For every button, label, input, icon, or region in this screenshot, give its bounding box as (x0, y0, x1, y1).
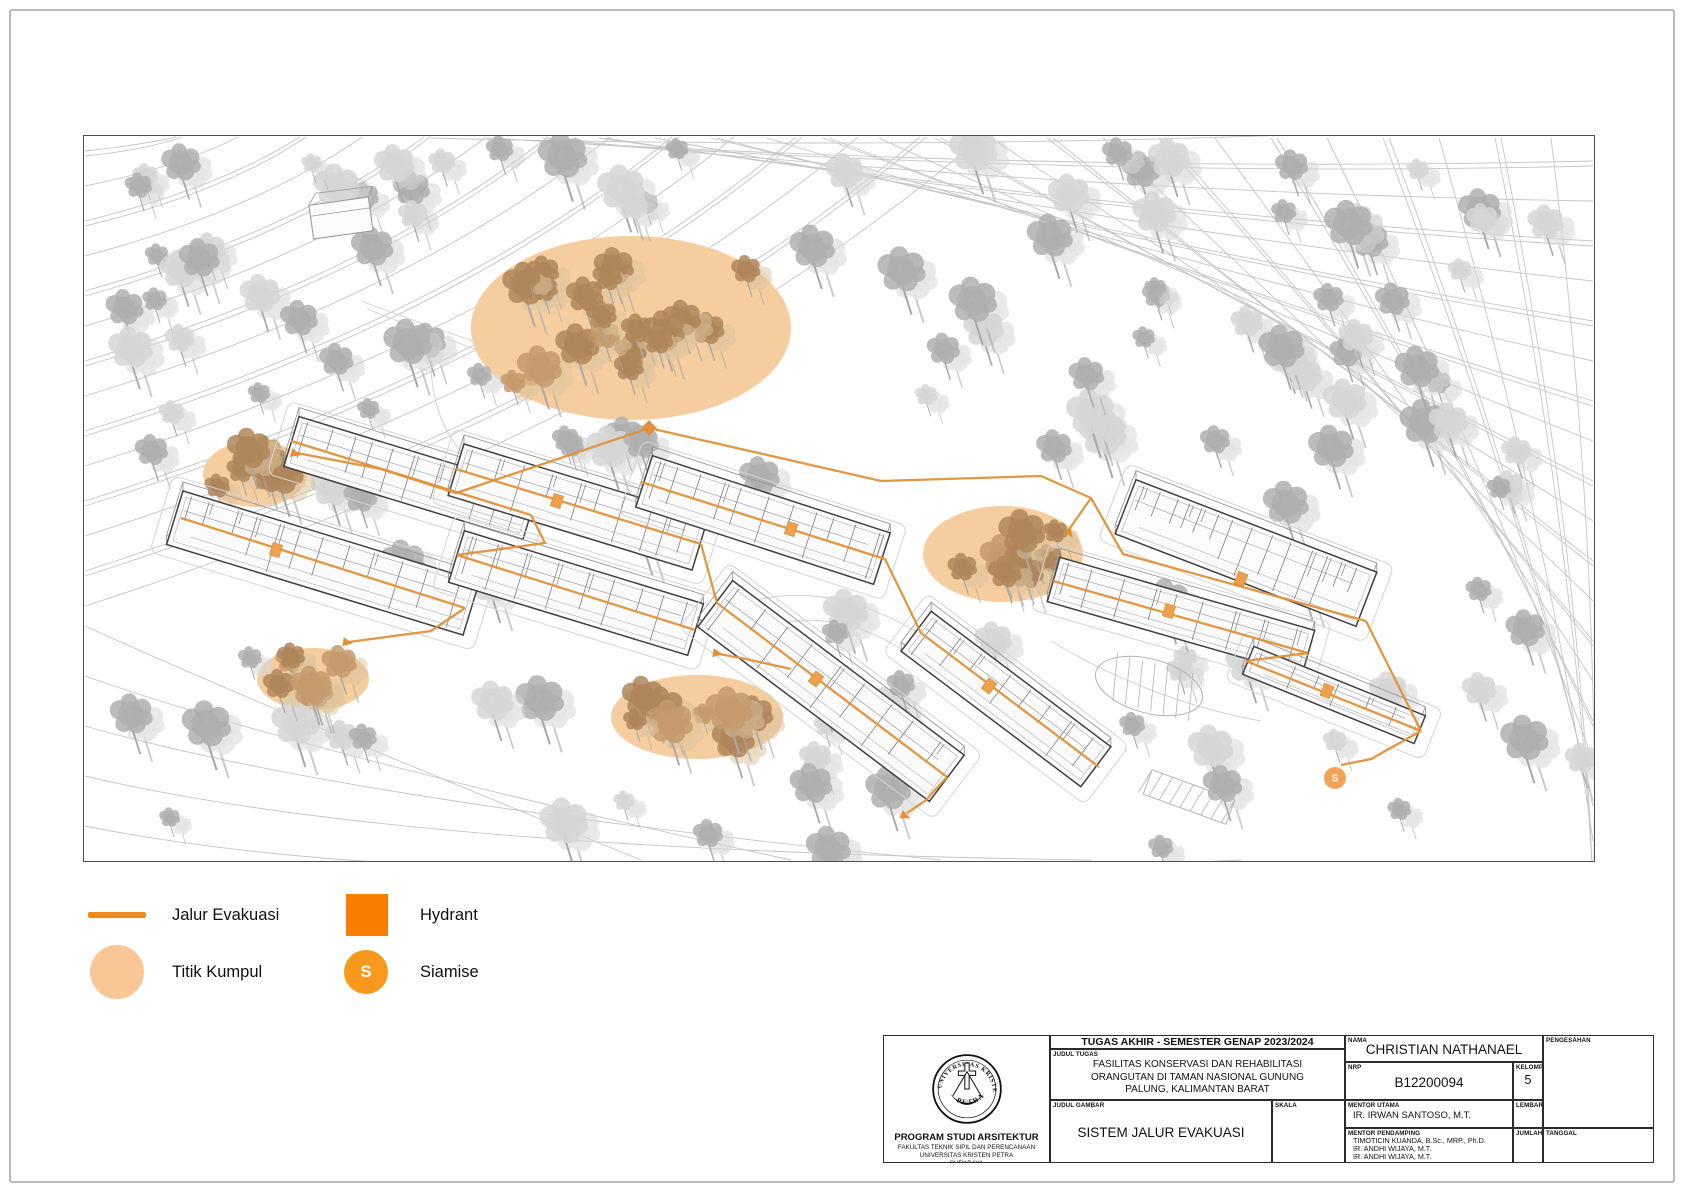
siamise-marker: S (1324, 767, 1346, 789)
judul-gambar-cell: JUDUL GAMBAR SISTEM JALUR EVAKUASI (1050, 1100, 1272, 1163)
nrp-label: NRP (1346, 1063, 1512, 1071)
judul-tugas-cell: JUDUL TUGAS FASILITAS KONSERVASI DAN REH… (1050, 1049, 1345, 1100)
university-seal-logo: UNIVERSITAS KRISTEN PETRA (931, 1053, 1003, 1125)
project-title-line: PALUNG, KALIMANTAN BARAT (1051, 1084, 1344, 1097)
program-name: PROGRAM STUDI ARSITEKTUR (884, 1132, 1049, 1144)
tanggal-label: TANGGAL (1544, 1129, 1653, 1137)
legend-item-titik-kumpul: Titik Kumpul (90, 945, 262, 999)
site-plan-svg: S (84, 136, 1594, 861)
site-plan-drawing: S (83, 135, 1595, 862)
legend-item-jalur-evakuasi: Jalur Evakuasi (88, 895, 279, 935)
siamise-swatch: S (344, 950, 388, 994)
judul-tugas-label: JUDUL TUGAS (1051, 1050, 1344, 1058)
student-id: B12200094 (1346, 1075, 1512, 1090)
legend-label-siamise: Siamise (420, 963, 479, 982)
buildings (150, 401, 1443, 819)
hydrant-swatch (346, 894, 388, 936)
nama-cell: NAMA CHRISTIAN NATHANAEL (1345, 1035, 1543, 1062)
legend-item-siamise: S Siamise (344, 950, 479, 994)
drawing-title: SISTEM JALUR EVAKUASI (1051, 1125, 1271, 1140)
faculty-name: FAKULTAS TEKNIK SIPIL DAN PERENCANAAN (884, 1144, 1049, 1152)
sheet-header: TUGAS AKHIR - SEMESTER GENAP 2023/2024 (1081, 1036, 1313, 1048)
presentation-sheet: S Jalur Evakuasi Hydrant Titik Kumpul S … (0, 0, 1684, 1192)
legend-label-titik-kumpul: Titik Kumpul (172, 963, 262, 982)
skala-label: SKALA (1273, 1101, 1344, 1109)
city-name: SURABAYA (884, 1160, 1049, 1163)
university-name: UNIVERSITAS KRISTEN PETRA (884, 1152, 1049, 1160)
evacuation-route (701, 544, 717, 603)
kelompok-label: KELOMPOK (1514, 1063, 1542, 1071)
main-mentor-name: IR. IRWAN SANTOSO, M.T. (1346, 1110, 1512, 1121)
pengesahan-cell: PENGESAHAN (1543, 1035, 1654, 1128)
evacuation-route-swatch (88, 912, 146, 918)
legend-label-hydrant: Hydrant (420, 906, 478, 925)
sheet-header-cell: TUGAS AKHIR - SEMESTER GENAP 2023/2024 (1050, 1035, 1345, 1049)
skala-cell: SKALA (1272, 1100, 1345, 1163)
jumlah-cell: JUMLAH (1513, 1128, 1543, 1163)
trees (106, 136, 1594, 861)
co-mentor-name: IR. ANDHI WIJAYA, M.T. (1346, 1153, 1512, 1161)
lembar-cell: LEMBAR (1513, 1100, 1543, 1128)
evacuation-route (1070, 498, 1091, 528)
project-title-line: FASILITAS KONSERVASI DAN REHABILITASI (1051, 1059, 1344, 1072)
student-name: CHRISTIAN NATHANAEL (1346, 1042, 1542, 1057)
svg-text:S: S (1332, 774, 1339, 785)
pengesahan-label: PENGESAHAN (1544, 1036, 1653, 1044)
jumlah-label: JUMLAH (1514, 1129, 1542, 1137)
lembar-label: LEMBAR (1514, 1101, 1542, 1109)
judul-gambar-label: JUDUL GAMBAR (1051, 1101, 1271, 1109)
assembly-point-swatch (90, 945, 144, 999)
nrp-cell: NRP B12200094 (1345, 1062, 1513, 1100)
mentor-pendamping-cell: MENTOR PENDAMPING TIMOTICIN KUANDA, B.Sc… (1345, 1128, 1513, 1163)
institution-cell: UNIVERSITAS KRISTEN PETRA PROGRAM STUDI … (883, 1035, 1050, 1163)
legend-label-jalur-evakuasi: Jalur Evakuasi (172, 906, 279, 925)
project-title-line: ORANGUTAN DI TAMAN NASIONAL GUNUNG (1051, 1072, 1344, 1085)
evacuation-route (885, 559, 921, 633)
group-number: 5 (1514, 1073, 1542, 1087)
mentor-utama-label: MENTOR UTAMA (1346, 1101, 1512, 1109)
kelompok-cell: KELOMPOK 5 (1513, 1062, 1543, 1100)
mentor-utama-cell: MENTOR UTAMA IR. IRWAN SANTOSO, M.T. (1345, 1100, 1513, 1128)
legend-item-hydrant: Hydrant (346, 894, 478, 936)
tanggal-cell: TANGGAL (1543, 1128, 1654, 1163)
title-block: UNIVERSITAS KRISTEN PETRA PROGRAM STUDI … (883, 1035, 1654, 1163)
